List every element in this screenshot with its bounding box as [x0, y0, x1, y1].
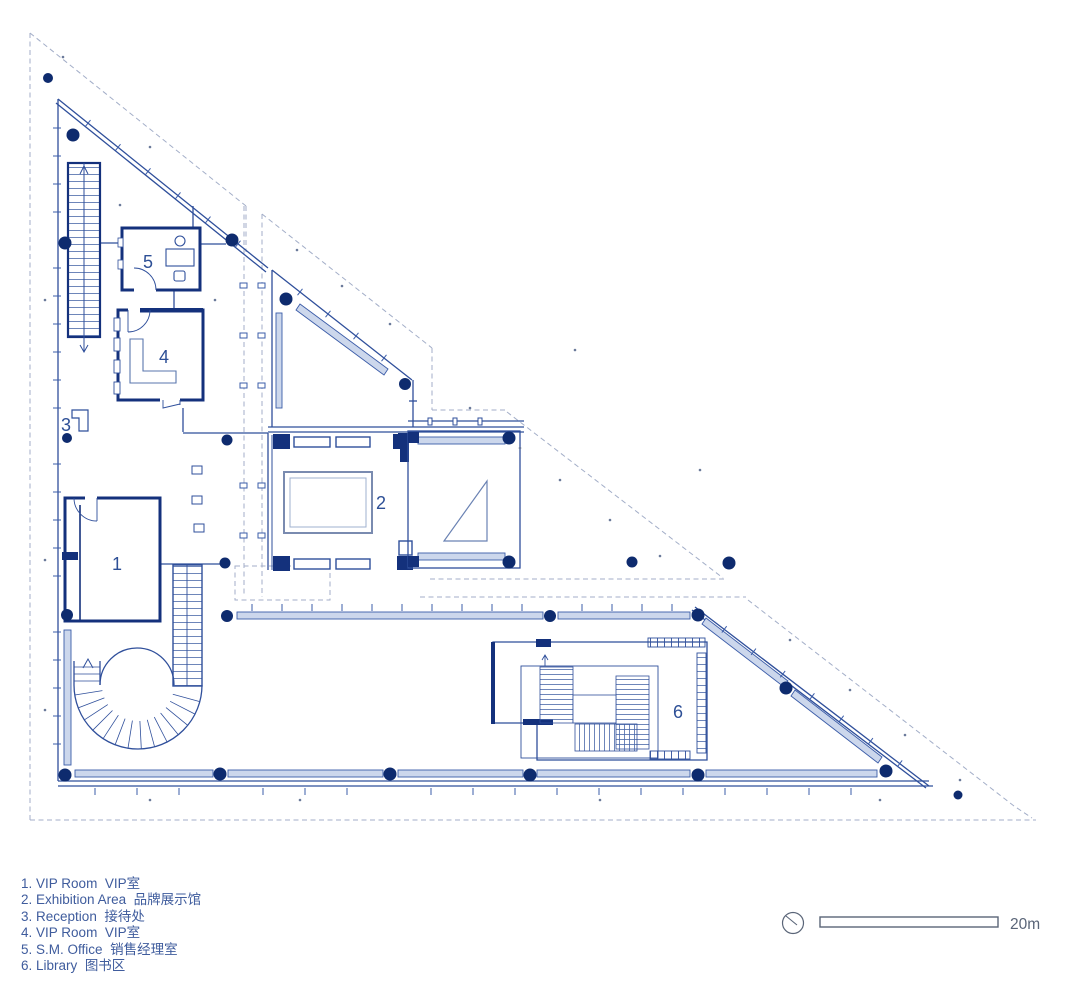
legend-item: 2. Exhibition Area 品牌展示馆	[21, 892, 201, 908]
scale-bar-group: 20m	[783, 913, 1041, 934]
square-gallery	[408, 431, 520, 568]
speck	[599, 799, 602, 802]
courtyard-diagonal-display	[296, 304, 388, 375]
column-dot	[524, 769, 537, 782]
column-dot	[61, 609, 73, 621]
library-steps	[521, 655, 658, 758]
speck	[44, 709, 47, 712]
chair	[174, 271, 185, 281]
legend-num: 3.	[21, 909, 32, 924]
room-6-library	[491, 638, 707, 760]
legend-zh: 品牌展示馆	[134, 892, 202, 907]
east-diagonal-display-1	[702, 618, 788, 687]
bookshelf	[648, 638, 705, 647]
column-dot	[954, 791, 963, 800]
legend-zh: VIP室	[105, 925, 140, 940]
legend-item: 6. Library 图书区	[21, 958, 201, 974]
legend-num: 2.	[21, 892, 32, 907]
column-dot	[280, 293, 293, 306]
speck	[699, 469, 702, 472]
courtyard-display-bar	[276, 313, 282, 408]
speck	[44, 559, 47, 562]
speck	[44, 299, 47, 302]
room-label-6: 6	[673, 702, 683, 722]
speck	[389, 323, 392, 326]
column-dot	[221, 610, 233, 622]
column-dot	[399, 378, 411, 390]
column-dot	[503, 556, 516, 569]
speck	[62, 56, 65, 59]
speck	[296, 249, 299, 252]
dashed-boundary	[30, 33, 1036, 820]
survey-specks	[44, 56, 962, 802]
triangle-exhibit	[444, 481, 487, 541]
column-dot	[384, 768, 397, 781]
floor-plan-page: 1 2 3 4 5 6 20m 1. VIP Room VIP室 2. Exhi…	[0, 0, 1080, 996]
scale-label: 20m	[1010, 916, 1040, 933]
chair	[175, 236, 185, 246]
door-arc	[74, 498, 97, 521]
sofa	[130, 339, 176, 383]
legend-en: VIP Room	[36, 925, 97, 940]
speck	[299, 799, 302, 802]
speck	[559, 479, 562, 482]
structural-columns	[43, 73, 963, 800]
room-label-5: 5	[143, 252, 153, 272]
speck	[469, 407, 472, 410]
column-dot	[692, 769, 705, 782]
column-dot	[59, 769, 72, 782]
room-label-3: 3	[61, 415, 71, 435]
speck	[789, 639, 792, 642]
legend-zh: 图书区	[85, 958, 126, 973]
column-dot	[723, 557, 736, 570]
room-5-office	[118, 228, 200, 290]
reception-desk	[72, 410, 88, 431]
north-needle	[786, 916, 797, 925]
room-label-4: 4	[159, 347, 169, 367]
legend-num: 1.	[21, 876, 32, 891]
column-dot	[503, 432, 516, 445]
bookshelf	[697, 653, 706, 753]
column-dot	[880, 765, 893, 778]
speck	[609, 519, 612, 522]
legend-item: 3. Reception 接待处	[21, 909, 201, 925]
legend-en: VIP Room	[36, 876, 97, 891]
column-dot	[226, 234, 239, 247]
speck	[119, 204, 122, 207]
curved-stair	[74, 565, 202, 749]
column-dot	[544, 610, 556, 622]
north-stair	[68, 163, 100, 352]
column-dot	[220, 558, 231, 569]
speck	[149, 799, 152, 802]
north-indicator-icon	[783, 913, 804, 934]
speck	[341, 285, 344, 288]
speck	[519, 447, 522, 450]
column-dot	[214, 768, 227, 781]
speck	[849, 689, 852, 692]
speck	[574, 349, 577, 352]
legend-num: 5.	[21, 942, 32, 957]
column-dot	[780, 682, 793, 695]
speck	[959, 779, 962, 782]
legend-en: Library	[36, 958, 77, 973]
column-dot	[222, 435, 233, 446]
legend-zh: 接待处	[104, 909, 145, 924]
column-dot	[59, 237, 72, 250]
room-label-1: 1	[112, 554, 122, 574]
legend-zh: 销售经理室	[110, 942, 178, 957]
legend-item: 4. VIP Room VIP室	[21, 925, 201, 941]
scale-bar	[820, 917, 998, 927]
legend: 1. VIP Room VIP室 2. Exhibition Area 品牌展示…	[21, 876, 201, 974]
column-dot	[692, 609, 705, 622]
desk	[166, 249, 194, 266]
speck	[879, 799, 882, 802]
column-dot	[43, 73, 53, 83]
exhibition-casework	[272, 433, 413, 571]
speck	[904, 734, 907, 737]
legend-item: 5. S.M. Office 销售经理室	[21, 942, 201, 958]
exhibit-table	[284, 472, 372, 533]
floor-plan-drawing: 1 2 3 4 5 6 20m	[0, 0, 1080, 996]
legend-en: S.M. Office	[36, 942, 103, 957]
legend-en: Reception	[36, 909, 97, 924]
east-diagonal-display-2	[791, 690, 882, 763]
door-arc	[128, 310, 150, 332]
column-dot	[67, 129, 80, 142]
column-dot	[627, 557, 638, 568]
legend-item: 1. VIP Room VIP室	[21, 876, 201, 892]
west-gallery-bar	[64, 630, 71, 765]
legend-num: 4.	[21, 925, 32, 940]
room-label-2: 2	[376, 493, 386, 513]
legend-zh: VIP室	[105, 876, 140, 891]
wall-ticks	[53, 120, 902, 795]
legend-en: Exhibition Area	[36, 892, 126, 907]
speck	[659, 555, 662, 558]
speck	[214, 299, 217, 302]
speck	[149, 146, 152, 149]
legend-num: 6.	[21, 958, 32, 973]
